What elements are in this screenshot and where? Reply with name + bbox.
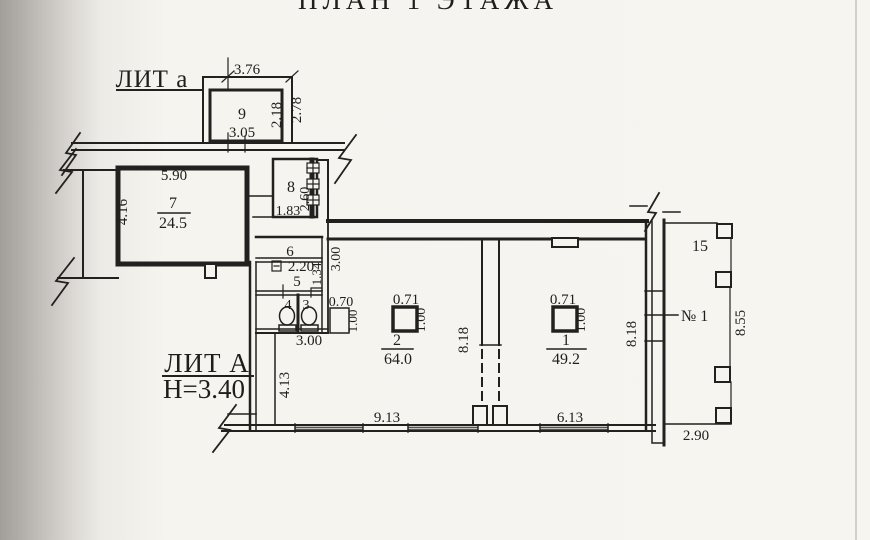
dim-room9-inner-right: 2.18 bbox=[269, 102, 285, 128]
dim-col2-height: 1.00 bbox=[414, 308, 429, 333]
room7-number: 7 bbox=[169, 195, 177, 212]
room8-number: 8 bbox=[287, 179, 295, 196]
room2-area: 64.0 bbox=[384, 351, 412, 368]
dim-shaft-height: 1.00 bbox=[345, 310, 360, 333]
dim-room2-side: 8.18 bbox=[456, 327, 472, 353]
dim-porch-bottom: 2.90 bbox=[683, 428, 709, 444]
dim-porch-right: 8.55 bbox=[733, 310, 749, 336]
dim-room5-right: 1.34 bbox=[309, 262, 324, 285]
divider-pilaster bbox=[493, 406, 507, 425]
unit-number-label: № 1 bbox=[681, 308, 708, 325]
top-wall-niche bbox=[552, 238, 578, 247]
dim-room1-side: 8.18 bbox=[624, 321, 640, 347]
dim-room8-bottom: 1.83 bbox=[276, 204, 301, 219]
floor-height-label: Н=3.40 bbox=[163, 374, 245, 404]
room6-number: 6 bbox=[286, 244, 294, 260]
dim-san-bottom: 3.00 bbox=[296, 333, 322, 349]
dim-room9-bottom: 3.05 bbox=[229, 125, 255, 141]
floor-plan-scan: ПЛАН 1 ЭТАЖА ЛИТ а ЛИТ А Н=3.40 9 3.76 2… bbox=[0, 0, 870, 540]
room4-number: 4 bbox=[285, 298, 292, 313]
room1-number: 1 bbox=[562, 332, 570, 349]
porch-number-label: 15 bbox=[692, 238, 708, 255]
divider-pilaster bbox=[473, 406, 487, 425]
room3-number: 3 bbox=[303, 298, 310, 313]
room1-area: 49.2 bbox=[552, 351, 580, 368]
dim-room1-bottom: 6.13 bbox=[557, 410, 583, 426]
dim-room9-top: 3.76 bbox=[234, 62, 261, 78]
dim-room7-left: 4.16 bbox=[115, 198, 131, 225]
dim-col1-width: 0.71 bbox=[550, 292, 576, 308]
dim-col2-width: 0.71 bbox=[393, 292, 419, 308]
dim-room8-right: 2.60 bbox=[298, 187, 313, 212]
scan-edge-right bbox=[855, 0, 857, 540]
dim-left-inner: 4.13 bbox=[277, 372, 293, 398]
dim-san-right: 3.00 bbox=[329, 247, 344, 272]
room7-area: 24.5 bbox=[159, 215, 187, 232]
lit-annex-label: ЛИТ а bbox=[116, 66, 189, 93]
dim-col1-height: 1.00 bbox=[574, 308, 589, 333]
room5-number: 5 bbox=[293, 274, 301, 290]
room2-number: 2 bbox=[393, 332, 401, 349]
dim-room9-outer-right: 2.78 bbox=[289, 97, 305, 123]
page-title: ПЛАН 1 ЭТАЖА bbox=[298, 0, 558, 15]
dim-room2-bottom: 9.13 bbox=[374, 410, 400, 426]
pilaster bbox=[205, 264, 216, 278]
dim-room7-top: 5.90 bbox=[161, 168, 187, 184]
dim-shaft-width: 0.70 bbox=[329, 295, 354, 310]
room9-number: 9 bbox=[238, 106, 246, 123]
